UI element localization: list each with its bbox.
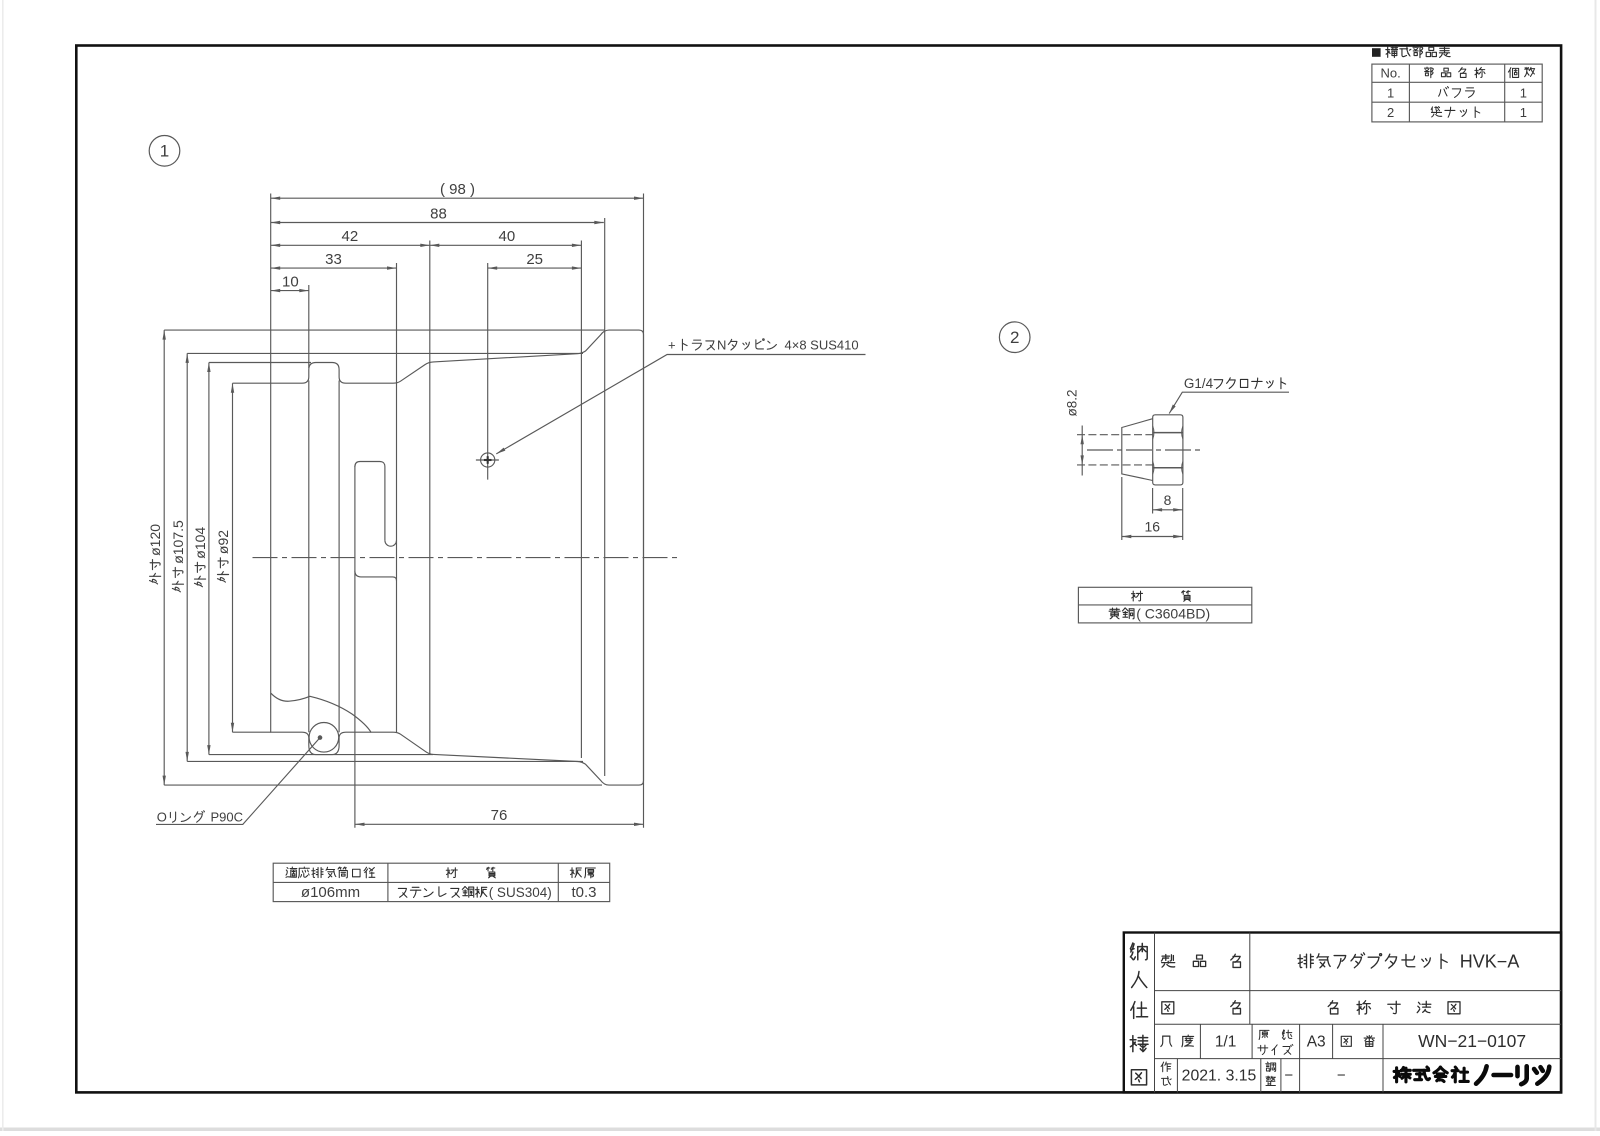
svg-text:16: 16 [1145, 519, 1161, 535]
svg-text:40: 40 [499, 228, 516, 245]
svg-text:ø120: ø120 [147, 524, 163, 556]
svg-text:10: 10 [282, 273, 299, 290]
svg-text:4×8 SUS410: 4×8 SUS410 [785, 338, 859, 353]
svg-text:88: 88 [430, 205, 447, 222]
svg-text:42: 42 [342, 228, 359, 245]
svg-text:1: 1 [160, 142, 169, 161]
svg-text:WN−21−0107: WN−21−0107 [1418, 1031, 1526, 1051]
svg-text:G1/4: G1/4 [1184, 376, 1214, 391]
svg-text:ø107.5: ø107.5 [170, 520, 186, 564]
svg-text:ø106mm: ø106mm [301, 884, 360, 901]
svg-text:1: 1 [1387, 85, 1394, 100]
svg-text:1/1: 1/1 [1215, 1034, 1237, 1051]
svg-text:2: 2 [1387, 105, 1394, 120]
svg-text:ø8.2: ø8.2 [1065, 389, 1080, 416]
svg-text:ø92: ø92 [215, 530, 231, 554]
svg-text:HVK−A: HVK−A [1460, 951, 1520, 971]
svg-text:( 98 ): ( 98 ) [440, 181, 475, 198]
svg-text:33: 33 [325, 251, 342, 268]
svg-text:O: O [157, 810, 167, 825]
svg-text:( C3604BD): ( C3604BD) [1136, 606, 1210, 622]
svg-text:No.: No. [1380, 66, 1400, 81]
svg-text:ø104: ø104 [192, 527, 208, 559]
svg-text:+: + [668, 338, 676, 353]
svg-text:N: N [717, 338, 726, 353]
svg-text:( SUS304): ( SUS304) [489, 885, 552, 900]
svg-text:76: 76 [491, 807, 508, 824]
svg-text:2: 2 [1010, 328, 1019, 347]
svg-text:8: 8 [1164, 492, 1172, 508]
svg-text:25: 25 [526, 251, 543, 268]
svg-text:1: 1 [1520, 105, 1527, 120]
svg-text:1: 1 [1520, 85, 1527, 100]
svg-text:−: − [1337, 1067, 1346, 1084]
svg-text:−: − [1284, 1067, 1293, 1084]
svg-text:P90C: P90C [211, 810, 244, 825]
svg-text:A3: A3 [1307, 1034, 1326, 1051]
svg-text:2021. 3.15: 2021. 3.15 [1182, 1068, 1257, 1085]
svg-text:t0.3: t0.3 [571, 884, 596, 901]
